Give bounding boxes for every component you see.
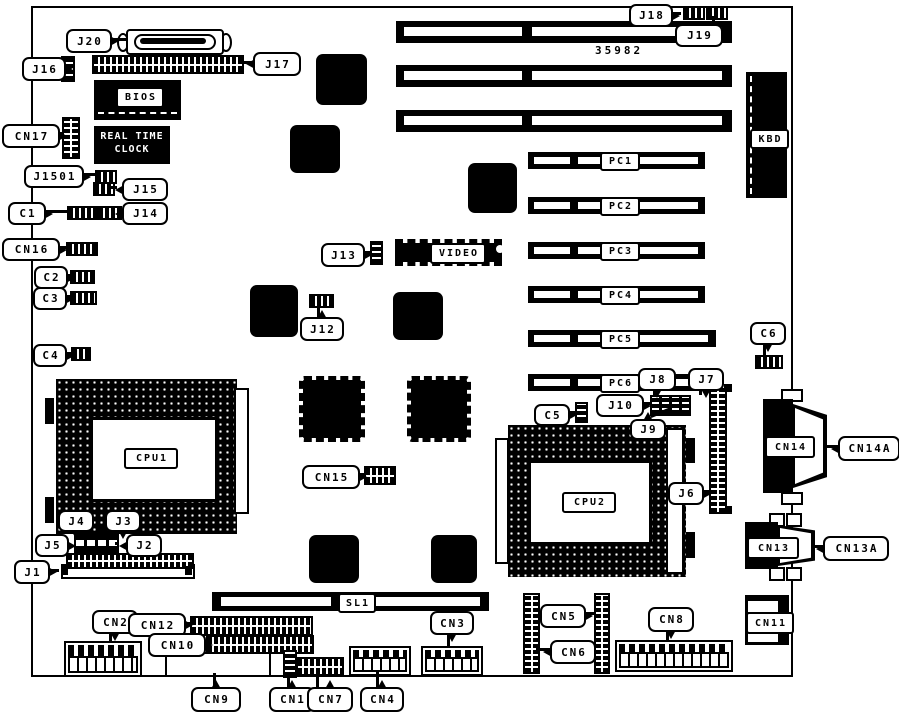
isa-slot-3-key2 bbox=[532, 116, 722, 125]
cn14-label: CN14 bbox=[765, 436, 815, 458]
callout-c3: C3 bbox=[33, 287, 67, 310]
isa-slot-2-key bbox=[404, 71, 522, 80]
pc3-label: PC3 bbox=[600, 242, 640, 261]
callout-cn14a: CN14A bbox=[838, 436, 899, 461]
bios-label: BIOS bbox=[116, 87, 164, 108]
callout-j1: J1 bbox=[14, 560, 50, 584]
cpu1-lever bbox=[234, 388, 249, 514]
cpu2-clip-top bbox=[686, 438, 695, 463]
cn16-jumper bbox=[66, 242, 98, 256]
video-label: VIDEO bbox=[430, 243, 486, 264]
j15-jumper bbox=[93, 182, 115, 196]
callout-j8: J8 bbox=[638, 368, 676, 391]
callout-j3: J3 bbox=[105, 510, 141, 532]
chip-5 bbox=[393, 292, 443, 340]
pc4-label: PC4 bbox=[600, 286, 640, 305]
video-chip-notch bbox=[496, 245, 504, 253]
j1-tab-left bbox=[61, 566, 68, 575]
callout-c1: C1 bbox=[8, 202, 46, 225]
cn5-header bbox=[594, 593, 610, 674]
callout-j13: J13 bbox=[321, 243, 365, 267]
cpu2-lever-left bbox=[495, 438, 509, 564]
cn7-header bbox=[296, 657, 344, 676]
j12-jumper bbox=[309, 294, 334, 308]
cn12-header bbox=[190, 616, 313, 636]
cpu1-clip-top bbox=[45, 398, 54, 424]
isa-slot-2 bbox=[396, 65, 732, 87]
callout-cn10: CN10 bbox=[148, 633, 206, 657]
sl1-label: SL1 bbox=[338, 593, 376, 613]
cn14-tab-bottom bbox=[781, 492, 803, 505]
c4-jumper bbox=[71, 347, 91, 361]
callout-j14: J14 bbox=[122, 202, 168, 225]
cn13-label: CN13 bbox=[747, 537, 799, 559]
cn11-label: CN11 bbox=[746, 612, 794, 634]
kbd-label: KBD bbox=[750, 129, 789, 149]
leader-j19 bbox=[712, 16, 715, 24]
pc6-label: PC6 bbox=[600, 374, 640, 393]
callout-j16: J16 bbox=[22, 57, 66, 81]
j18-jumper bbox=[683, 6, 705, 20]
chip-4 bbox=[250, 285, 298, 337]
j6-header bbox=[709, 388, 727, 514]
callout-j15: J15 bbox=[122, 178, 168, 201]
pc2-label: PC2 bbox=[600, 197, 640, 216]
j20-connector-pins bbox=[140, 38, 206, 44]
callout-c6: C6 bbox=[750, 322, 786, 345]
c6-jumper bbox=[755, 355, 783, 369]
callout-j20: J20 bbox=[66, 29, 112, 53]
c3-jumper bbox=[70, 291, 97, 305]
cn4-connector bbox=[349, 646, 411, 676]
isa-slot-2-key2 bbox=[532, 71, 722, 80]
callout-j4: J4 bbox=[58, 510, 94, 532]
cpu1-label: CPU1 bbox=[124, 448, 178, 469]
callout-cn17: CN17 bbox=[2, 124, 60, 148]
part-number: 35982 bbox=[595, 44, 643, 57]
pc5-label: PC5 bbox=[600, 330, 640, 349]
cpu2-label: CPU2 bbox=[562, 492, 616, 513]
cpu2-clip-bottom bbox=[686, 532, 695, 558]
isa-slot-1-key bbox=[404, 27, 522, 36]
cn3-connector bbox=[421, 646, 483, 676]
callout-cn8: CN8 bbox=[648, 607, 694, 632]
chip-6 bbox=[309, 535, 359, 583]
j17-header bbox=[92, 55, 244, 74]
leader-j3 bbox=[100, 528, 103, 534]
callout-cn3: CN3 bbox=[430, 611, 474, 635]
cn8-connector bbox=[615, 640, 733, 672]
callout-j7: J7 bbox=[688, 368, 724, 391]
callout-j10: J10 bbox=[596, 394, 644, 417]
callout-j18: J18 bbox=[629, 4, 673, 27]
callout-cn9: CN9 bbox=[191, 687, 241, 712]
rtc-label-line1: REAL TIME bbox=[94, 131, 170, 142]
callout-cn13a: CN13A bbox=[823, 536, 889, 561]
chip-7 bbox=[431, 535, 477, 583]
cn13-tab-bottom-2 bbox=[786, 567, 802, 581]
callout-j2: J2 bbox=[126, 534, 162, 557]
chip-1 bbox=[316, 54, 367, 105]
cn11-cutout-top bbox=[748, 601, 778, 612]
callout-cn15: CN15 bbox=[302, 465, 360, 489]
callout-cn4: CN4 bbox=[360, 687, 404, 712]
cn6-header bbox=[523, 593, 540, 674]
cpu1-clip-bottom bbox=[45, 497, 54, 523]
c1-jumper bbox=[67, 206, 97, 220]
qfp-chip-1 bbox=[299, 376, 365, 442]
cn2-connector bbox=[64, 641, 142, 677]
callout-c5: C5 bbox=[534, 404, 570, 426]
callout-cn6: CN6 bbox=[550, 640, 596, 664]
leader-cn7 bbox=[316, 672, 319, 687]
cn11-cutout-bottom bbox=[748, 633, 778, 642]
cn13-tab-top-2 bbox=[786, 513, 802, 527]
callout-c2: C2 bbox=[34, 266, 68, 289]
callout-j6: J6 bbox=[668, 482, 704, 505]
cn1-connector bbox=[283, 650, 297, 678]
chip-2 bbox=[290, 125, 340, 173]
callout-j19: J19 bbox=[675, 24, 723, 47]
callout-cn16: CN16 bbox=[2, 238, 60, 261]
callout-j17: J17 bbox=[253, 52, 301, 76]
j1-tab-right bbox=[185, 566, 192, 575]
cn10-header bbox=[206, 635, 314, 654]
callout-c4: C4 bbox=[33, 344, 67, 367]
callout-j1501: J1501 bbox=[24, 165, 84, 188]
chip-3 bbox=[468, 163, 517, 213]
isa-slot-3-key bbox=[404, 116, 522, 125]
isa-slot-3 bbox=[396, 110, 732, 132]
pc1-label: PC1 bbox=[600, 152, 640, 171]
callout-cn7: CN7 bbox=[307, 687, 353, 712]
qfp-chip-2 bbox=[407, 376, 471, 442]
motherboard-diagram: J20 J17 J16 BIOS CN17 REAL TIME CLOCK J1… bbox=[0, 0, 899, 713]
callout-j12: J12 bbox=[300, 317, 344, 341]
rtc-label-line2: CLOCK bbox=[94, 144, 170, 155]
callout-j9: J9 bbox=[630, 419, 666, 440]
callout-j5: J5 bbox=[35, 534, 69, 557]
j10-jumper-4 bbox=[680, 395, 691, 416]
cn15-header bbox=[364, 466, 396, 485]
j19-jumper bbox=[706, 6, 728, 20]
cn13-tab-bottom-1 bbox=[769, 567, 785, 581]
callout-cn5: CN5 bbox=[540, 604, 586, 628]
bios-socket-line bbox=[98, 112, 177, 114]
